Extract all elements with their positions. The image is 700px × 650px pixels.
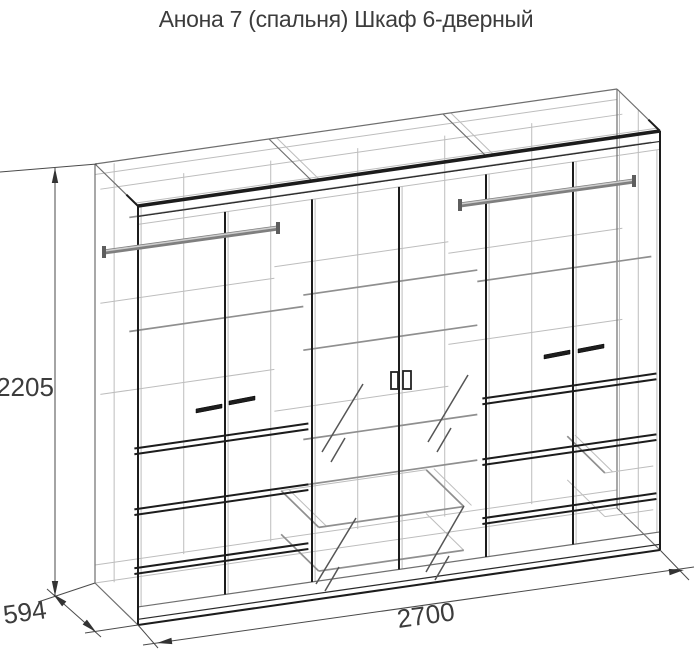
drawer-band bbox=[482, 440, 656, 465]
mirror-hatch-stroke bbox=[435, 556, 449, 580]
wireframe-line bbox=[100, 278, 274, 303]
drawer-band bbox=[134, 424, 308, 449]
wireframe-line bbox=[95, 99, 617, 174]
wireframe-line bbox=[319, 507, 464, 528]
wireframe-line bbox=[95, 490, 617, 565]
extension-line bbox=[0, 164, 97, 172]
diagram-page: Анона 7 (спальня) Шкаф 6-дверный 2205 59… bbox=[0, 0, 700, 650]
wireframe-line bbox=[434, 469, 472, 506]
height-dimension-label: 2205 bbox=[0, 372, 54, 402]
wireframe-line bbox=[605, 466, 653, 473]
wireframe-line bbox=[100, 369, 274, 394]
wardrobe-wireframe bbox=[95, 89, 660, 625]
wireframe-line bbox=[281, 491, 319, 528]
drawer-band bbox=[134, 484, 308, 509]
wardrobe-diagram-canvas: Анона 7 (спальня) Шкаф 6-дверный 2205 59… bbox=[0, 0, 700, 650]
shelf bbox=[303, 270, 477, 295]
door-handles bbox=[196, 344, 604, 413]
door-6-handle bbox=[578, 344, 604, 353]
mirror-hatch-stroke bbox=[316, 518, 356, 584]
drawer-band bbox=[134, 549, 308, 574]
diagram-title: Анона 7 (спальня) Шкаф 6-дверный bbox=[159, 6, 534, 32]
mirror-hatch-stroke bbox=[437, 428, 451, 452]
wireframe-line bbox=[135, 128, 657, 203]
shelf bbox=[303, 460, 477, 485]
depth-dimension-label: 594 bbox=[1, 594, 48, 630]
wireframe-line bbox=[448, 228, 622, 253]
shelf bbox=[303, 325, 477, 350]
hanging-rod-left bbox=[104, 228, 278, 252]
wireframe-line bbox=[281, 470, 426, 491]
hanging-rod-left-highlight bbox=[104, 227, 278, 251]
dimension-arrowhead bbox=[52, 168, 58, 183]
mirror-door-left-pull bbox=[391, 372, 398, 389]
wireframe-line bbox=[126, 195, 138, 206]
wireframe-line bbox=[274, 242, 448, 267]
wireframe-line bbox=[95, 583, 138, 625]
extension-line bbox=[660, 550, 689, 580]
drawer-band bbox=[482, 379, 656, 404]
drawer-band bbox=[134, 490, 308, 515]
dimension-depth: 594 bbox=[1, 594, 48, 630]
shelf bbox=[477, 256, 651, 281]
wireframe-line bbox=[426, 513, 464, 550]
dimension-lines bbox=[0, 164, 694, 648]
dimension-height: 2205 bbox=[0, 372, 54, 402]
door-2-handle bbox=[229, 396, 255, 405]
shelf bbox=[303, 414, 477, 439]
wireframe-line bbox=[448, 319, 622, 344]
drawer-band bbox=[134, 429, 308, 454]
drawer-band bbox=[482, 374, 656, 399]
dimension-arrowhead bbox=[157, 638, 172, 644]
wireframe-line bbox=[274, 386, 448, 411]
shelf bbox=[129, 306, 303, 331]
door-5-handle bbox=[544, 350, 570, 359]
mirror-door-right-pull bbox=[403, 371, 411, 389]
wireframe-line bbox=[605, 510, 653, 517]
dimension-arrowhead bbox=[83, 620, 96, 632]
mirror-hatch-stroke bbox=[331, 438, 345, 462]
width-dimension-label: 2700 bbox=[395, 596, 456, 634]
door-1-handle bbox=[196, 404, 222, 413]
wireframe-line bbox=[289, 489, 327, 526]
extension-line bbox=[38, 583, 95, 602]
dimension-width: 2700 bbox=[395, 596, 456, 634]
